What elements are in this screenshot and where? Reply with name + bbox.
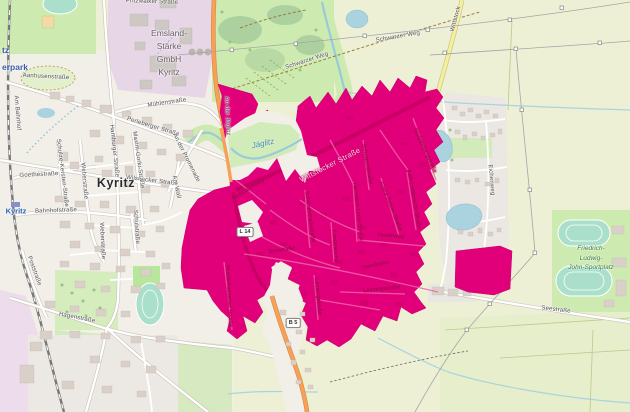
map-graphics: [0, 0, 630, 412]
green-strip: [446, 138, 492, 158]
pond-town: [37, 108, 55, 118]
school-building: [42, 16, 54, 28]
station-marker: [11, 202, 20, 207]
industrial-area: [108, 0, 212, 98]
highlighted-zone-patch: [455, 246, 512, 295]
pond-north: [346, 10, 368, 28]
allotments-area: [21, 66, 75, 90]
map-canvas: KyritzKyritztzerparkJäglitzPerleberger S…: [0, 0, 630, 412]
meadow-area-southeast: [440, 310, 630, 412]
